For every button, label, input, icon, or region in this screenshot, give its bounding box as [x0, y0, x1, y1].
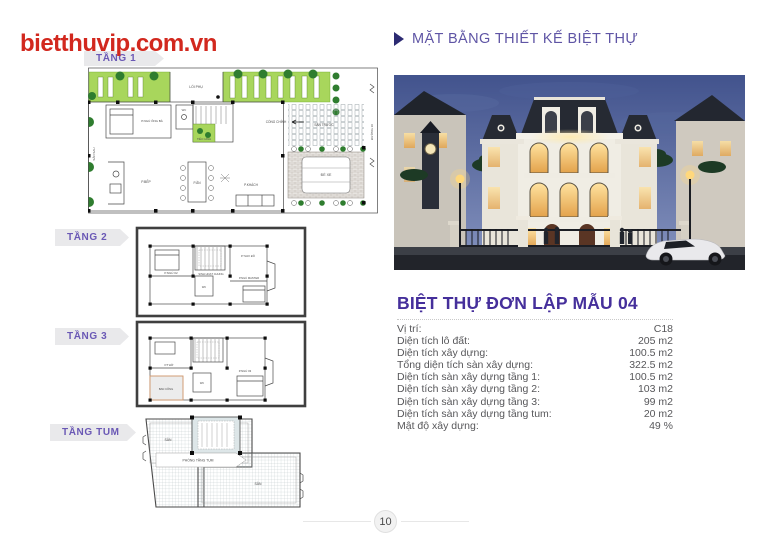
room-label: P.THỜ	[164, 362, 173, 367]
floor-banner-label: TẦNG TUM	[62, 427, 120, 438]
room-label: WC	[182, 108, 187, 112]
spec-label: Diện tích sàn xây dựng tầng tum:	[397, 408, 552, 420]
spec-label: Diện tích sàn xây dựng tầng 1:	[397, 371, 540, 383]
section-header: MẶT BẰNG THIẾT KẾ BIỆT THỰ	[394, 31, 638, 47]
room-label: WC	[202, 285, 206, 289]
spec-row: Tổng diện tích sàn xây dựng:322.5 m2	[397, 359, 673, 371]
floorplan-tangtum: PHÒNG TẦNG TUM SÂN SÂN	[140, 415, 305, 512]
brochure-page: bietthuvip.com.vn MẶT BẰNG THIẾT KẾ BIỆT…	[0, 0, 768, 543]
spec-value: 99 m2	[644, 396, 673, 408]
villa-photo	[394, 75, 745, 270]
site-logo: bietthuvip.com.vn	[20, 30, 217, 58]
spec-value: 20 m2	[644, 408, 673, 420]
room-label: P.NGỦ 02	[164, 270, 178, 275]
room-label: LỐI PHỤ	[189, 84, 203, 89]
spec-row: Diện tích lô đất:205 m2	[397, 335, 673, 347]
room-label: P.KHÁCH	[244, 183, 258, 187]
room-label: SÂN SAU	[91, 147, 96, 160]
floorplan-tang1: LỐI PHỤ ĐỂ XE ĐƯỜNG 10	[88, 62, 378, 214]
spec-row: Vị trí:C18	[397, 323, 673, 335]
floor-banner-label: TẦNG 2	[67, 232, 107, 243]
floor-banner-tang3: TẦNG 3	[55, 328, 129, 345]
room-label: WC	[200, 381, 204, 385]
room-label: SINH HOẠT CHUNG	[198, 272, 223, 276]
spec-row: Diện tích sàn xây dựng tầng 1:100.5 m2	[397, 371, 673, 383]
floorplan-tang2: P.NGỦ 02 SINH HOẠT CHUNG P.THAY ĐỒ P.NGỦ…	[135, 226, 307, 318]
spec-table: Vị trí:C18 Diện tích lô đất:205 m2 Diện …	[397, 319, 673, 432]
model-title: BIỆT THỰ ĐƠN LẬP MẪU 04	[397, 293, 638, 314]
spec-label: Vị trí:	[397, 323, 422, 335]
floor-banner-tangtum: TẦNG TUM	[50, 424, 136, 441]
room-label: P.ĂN	[193, 181, 201, 185]
floor-banner-tang2: TẦNG 2	[55, 229, 129, 246]
footer-rule-right	[401, 521, 469, 522]
room-label: ĐỂ XE	[321, 172, 332, 177]
footer-rule-left	[303, 521, 371, 522]
floor-banner-label: TẦNG 3	[67, 331, 107, 342]
spec-value: 322.5 m2	[629, 359, 673, 371]
room-label: P.NGỦ MASTER	[239, 275, 259, 280]
page-number-text: 10	[379, 516, 391, 528]
section-title: MẶT BẰNG THIẾT KẾ BIỆT THỰ	[412, 31, 638, 47]
spec-label: Mật độ xây dựng:	[397, 420, 479, 432]
room-label: PHÒNG TẦNG TUM	[183, 458, 214, 463]
room-label: P.NGỦ 03	[239, 368, 252, 373]
spec-label: Tổng diện tích sàn xây dựng:	[397, 359, 533, 371]
spec-value: C18	[654, 323, 673, 335]
room-label: SÂN TRƯỚC	[314, 122, 334, 127]
spec-label: Diện tích sàn xây dựng tầng 2:	[397, 383, 540, 395]
spec-label: Diện tích lô đất:	[397, 335, 470, 347]
spec-value: 100.5 m2	[629, 371, 673, 383]
spec-row: Diện tích sàn xây dựng tầng 3:99 m2	[397, 396, 673, 408]
room-label: P.BẾP	[141, 179, 151, 184]
room-label: P.NGỦ ÔNG BÀ	[141, 118, 163, 123]
spec-value: 103 m2	[638, 383, 673, 395]
spec-row: Diện tích sàn xây dựng tầng tum:20 m2	[397, 408, 673, 420]
spec-row: Diện tích xây dựng:100.5 m2	[397, 347, 673, 359]
triangle-bullet-icon	[394, 32, 404, 46]
spec-value: 100.5 m2	[629, 347, 673, 359]
spec-row: Diện tích sàn xây dựng tầng 2:103 m2	[397, 383, 673, 395]
floorplan-tang3: P.THỜ BAN CÔNG P.NGỦ 03 WC	[135, 320, 307, 408]
spec-value: 49 %	[649, 420, 673, 432]
spec-row: Mật độ xây dựng:49 %	[397, 420, 673, 432]
spec-label: Diện tích xây dựng:	[397, 347, 488, 359]
room-label: SÂN	[165, 438, 173, 442]
villa-night-render	[394, 75, 745, 270]
room-label: CỔNG CHÍNH	[266, 119, 287, 124]
room-label: P.THAY ĐỒ	[241, 253, 255, 258]
page-number: 10	[374, 510, 397, 533]
spec-value: 205 m2	[638, 335, 673, 347]
room-label: SÂN	[255, 482, 263, 486]
spec-label: Diện tích sàn xây dựng tầng 3:	[397, 396, 540, 408]
room-label: ĐƯỜNG 10	[369, 124, 374, 140]
